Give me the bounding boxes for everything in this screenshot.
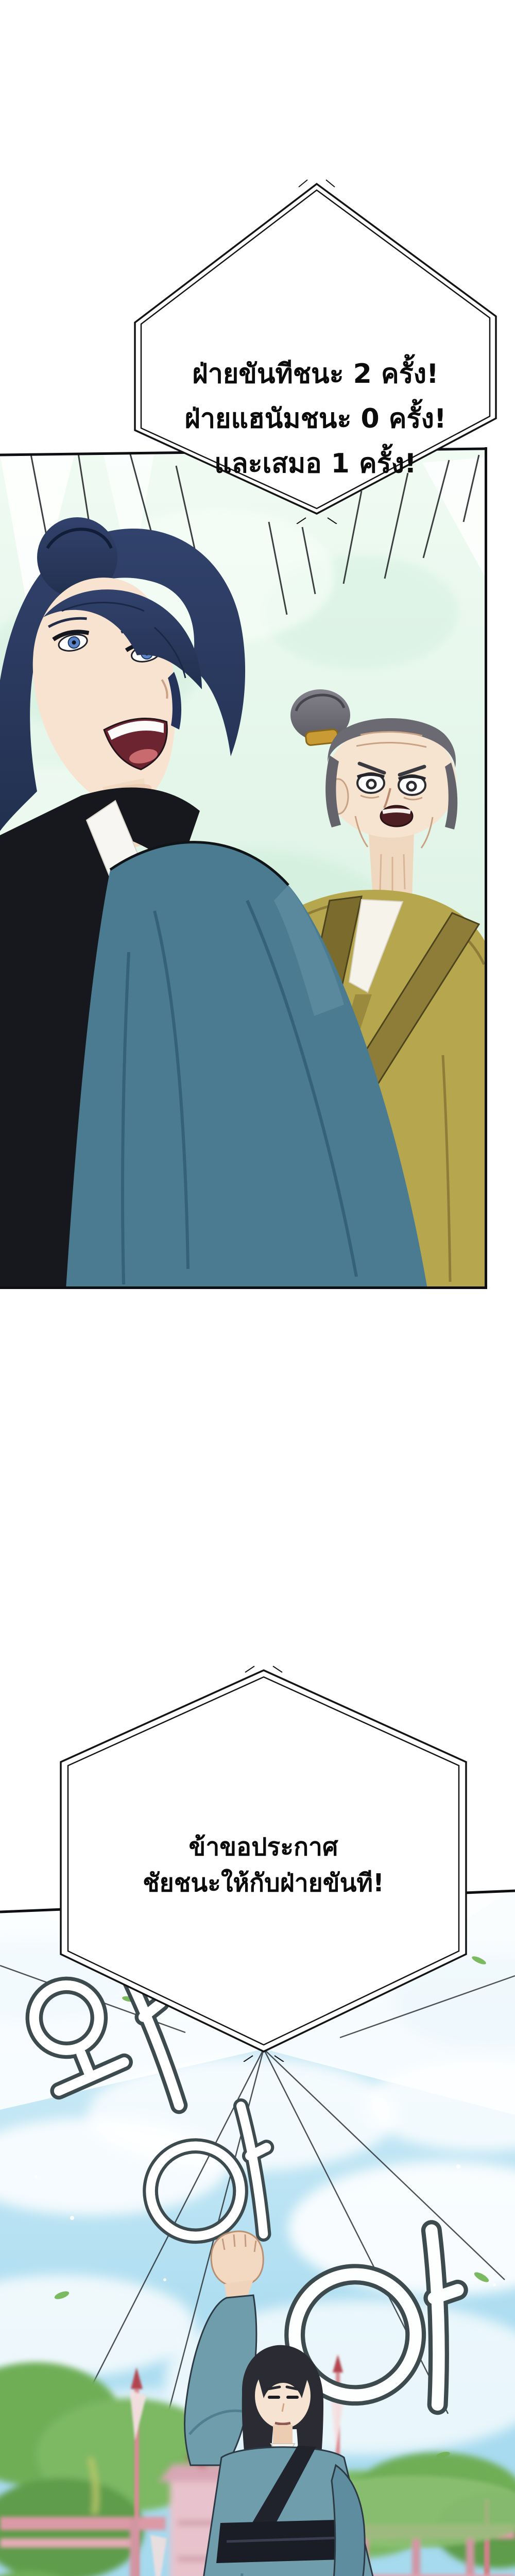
speech-bubble-announcement: ข้าขอประกาศ ชัยชนะให้กับฝ่ายขันที! (50, 1660, 476, 2062)
bubble-2-line-1: ข้าขอประกาศ (50, 1829, 476, 1865)
panel1-bottom-border (0, 1286, 485, 1289)
bubble-1-line-1: ฝ่ายขันทีชนะ 2 ครั้ง! (125, 352, 506, 397)
speech-bubble-score: ฝ่ายขันทีชนะ 2 ครั้ง! ฝ่ายแฮนัมชนะ 0 ครั… (125, 174, 506, 524)
bubble-1-text: ฝ่ายขันทีชนะ 2 ครั้ง! ฝ่ายแฮนัมชนะ 0 ครั… (125, 352, 506, 486)
panel-masters-react (0, 447, 487, 1289)
bubble-2-line-2: ชัยชนะให้กับฝ่ายขันที! (50, 1865, 476, 1901)
bubble-2-text: ข้าขอประกาศ ชัยชนะให้กับฝ่ายขันที! (50, 1829, 476, 1901)
bubble-1-line-3: และเสมอ 1 ครั้ง! (125, 442, 506, 486)
panel-1-art (0, 447, 485, 1289)
bubble-1-line-2: ฝ่ายแฮนัมชนะ 0 ครั้ง! (125, 397, 506, 442)
margin-top (0, 0, 515, 184)
webtoon-page: ฝ่ายขันทีชนะ 2 ครั้ง! ฝ่ายแฮนัมชนะ 0 ครั… (0, 0, 515, 2576)
